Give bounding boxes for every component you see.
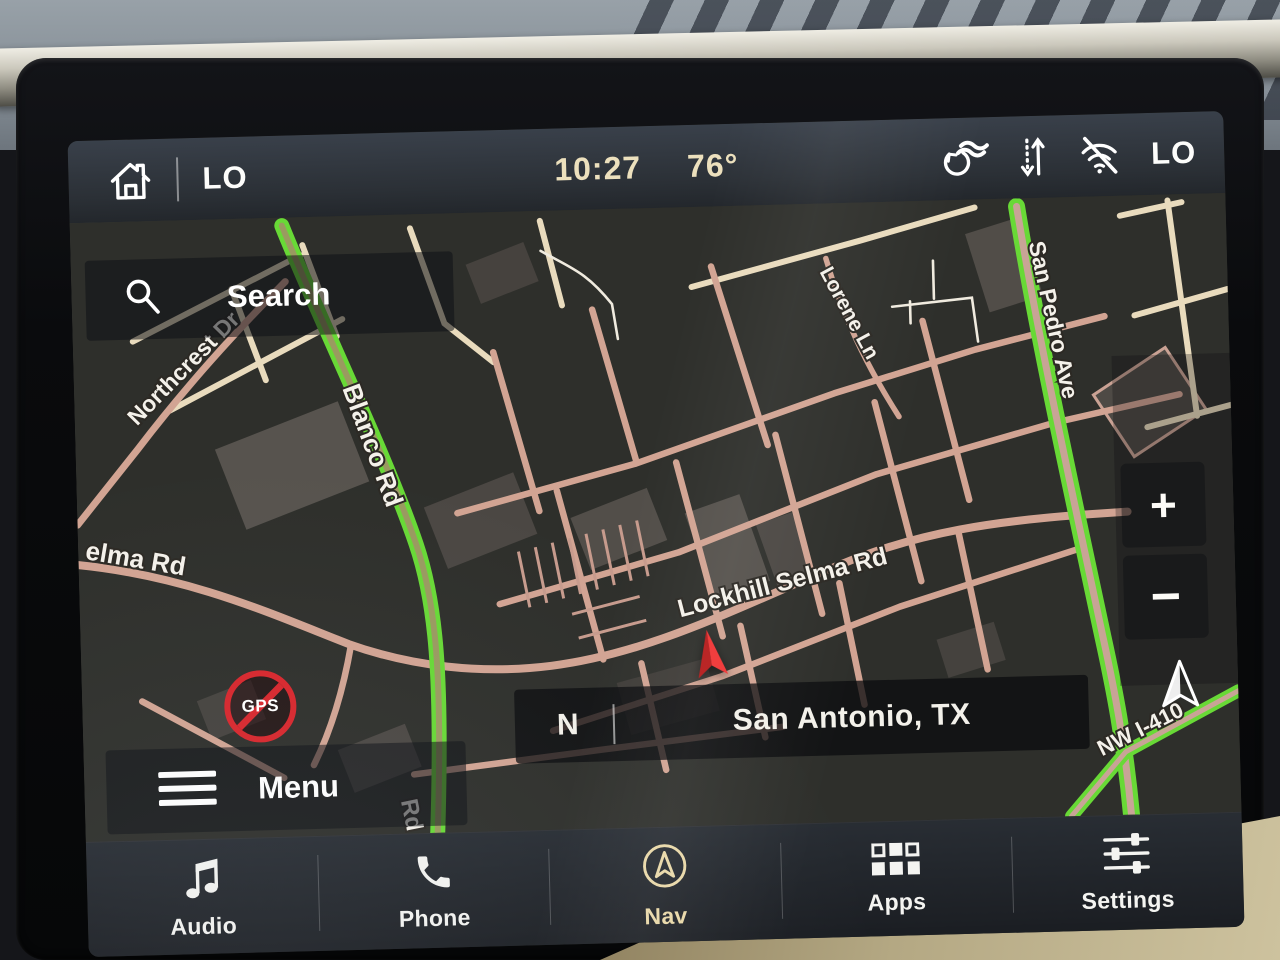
driver-temp: LO — [202, 160, 248, 197]
search-button[interactable]: Search — [85, 251, 455, 341]
wifi-off-icon — [1077, 134, 1122, 177]
search-label: Search — [163, 275, 394, 317]
dock-item-settings[interactable]: Settings — [1010, 813, 1244, 934]
air-recirculation-icon — [941, 136, 990, 181]
audio-icon — [181, 854, 224, 906]
location-bar: N San Antonio, TX — [514, 675, 1090, 764]
settings-icon — [1101, 832, 1152, 880]
dock-label-apps: Apps — [867, 888, 926, 917]
current-location: San Antonio, TX — [614, 695, 1089, 741]
dock-label-audio: Audio — [170, 912, 237, 941]
menu-label: Menu — [216, 767, 381, 807]
gps-badge-label: GPS — [241, 696, 279, 717]
north-arrow-icon — [1156, 657, 1203, 712]
zoom-out-label: − — [1150, 566, 1182, 627]
dock-label-nav: Nav — [644, 902, 688, 930]
search-icon — [123, 275, 164, 323]
zoom-out-button[interactable]: − — [1123, 554, 1209, 640]
zoom-in-button[interactable]: + — [1120, 462, 1206, 548]
compass-letter: N — [557, 708, 580, 743]
dock-label-phone: Phone — [399, 904, 471, 933]
nav-icon — [639, 840, 690, 896]
dock-item-audio[interactable]: Audio — [86, 837, 320, 957]
vehicle-position-marker — [684, 626, 736, 688]
apps-icon — [871, 842, 920, 882]
clock: 10:27 — [554, 149, 642, 188]
dock-item-phone[interactable]: Phone — [317, 831, 551, 952]
airflow-icon — [1019, 134, 1048, 181]
dock-label-settings: Settings — [1081, 886, 1175, 915]
menu-icon — [158, 768, 217, 813]
outside-temp: 76° — [687, 146, 739, 184]
zoom-in-label: + — [1149, 477, 1177, 532]
status-divider — [176, 157, 179, 201]
home-icon[interactable] — [108, 160, 153, 201]
map-canvas[interactable]: Northcrest Dr Blanco Rd Lorene Ln San Pe… — [70, 193, 1242, 842]
dock-item-apps[interactable]: Apps — [779, 819, 1013, 940]
infotainment-screen: LO 10:27 76° — [68, 111, 1245, 957]
phone-icon — [412, 850, 455, 898]
compass-north-button[interactable] — [1147, 652, 1213, 718]
dock-item-nav[interactable]: Nav — [548, 825, 782, 946]
menu-button[interactable]: Menu — [105, 741, 467, 834]
passenger-temp: LO — [1151, 135, 1197, 172]
